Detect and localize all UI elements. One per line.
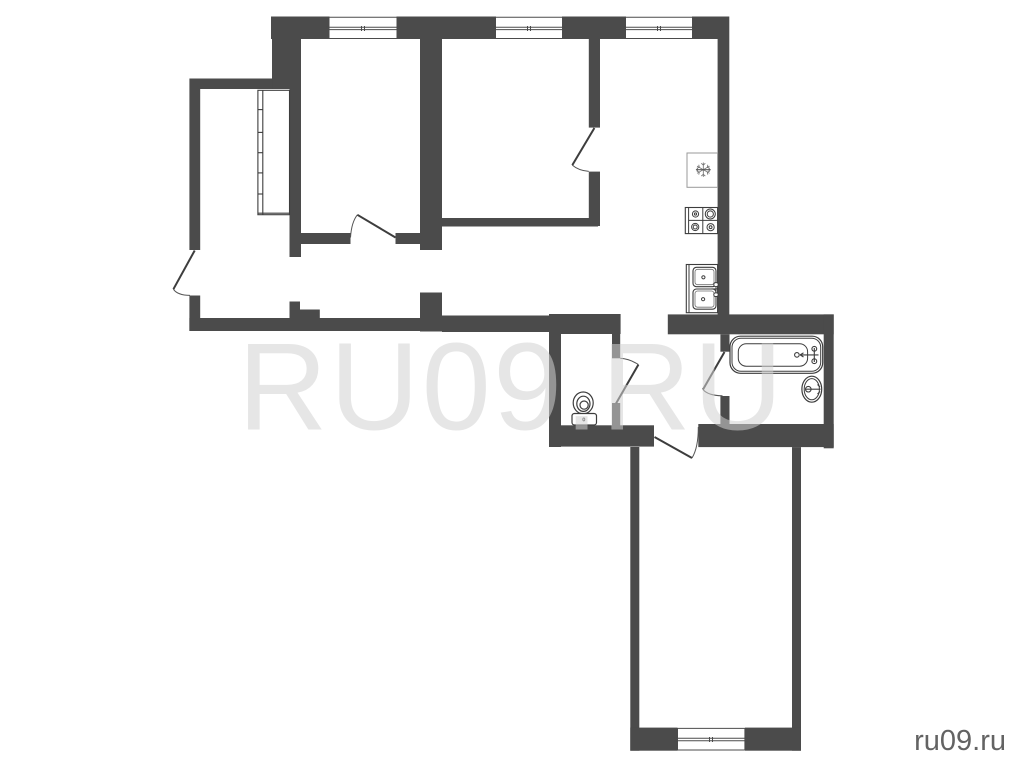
svg-text:ru09.ru: ru09.ru xyxy=(914,725,1006,757)
svg-text:RU09.RU: RU09.RU xyxy=(238,319,785,457)
